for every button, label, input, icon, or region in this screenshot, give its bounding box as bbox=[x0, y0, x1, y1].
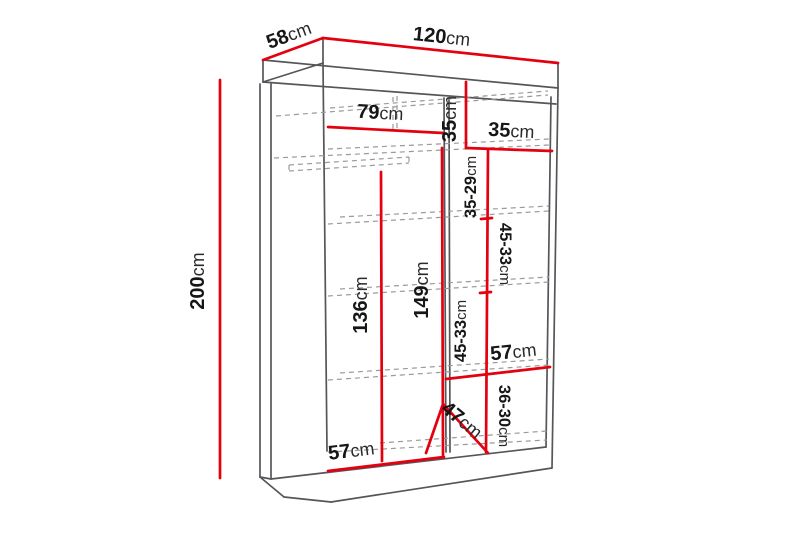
top-panel-front-bottom bbox=[263, 82, 556, 104]
left-foot-slant bbox=[260, 477, 284, 497]
dim-label-35-vertical: 35cm bbox=[439, 96, 461, 142]
dim-line-right-chain bbox=[486, 150, 488, 452]
dim-chain-tick-1 bbox=[481, 218, 492, 219]
interior-back-left-corner bbox=[323, 63, 327, 451]
shelf2-front bbox=[328, 211, 549, 224]
dim-label-47: 47cm bbox=[437, 397, 487, 443]
dim-label-45-33-lower: 45-33cm bbox=[452, 300, 470, 362]
dim-label-35-horizontal: 35cm bbox=[488, 119, 535, 143]
plinth-bottom-edge bbox=[331, 468, 552, 502]
dim-label-depth-58: 58cm bbox=[263, 17, 314, 54]
dim-label-width-120: 120cm bbox=[412, 23, 471, 51]
ceiling-back-edge-a bbox=[276, 95, 548, 116]
dim-line-79 bbox=[328, 127, 443, 133]
left-foot-to-plinth bbox=[284, 497, 331, 502]
dim-label-136: 136cm bbox=[350, 276, 372, 333]
dim-label-height-200: 200cm bbox=[187, 252, 209, 309]
dimension-labels: 58cm 120cm 200cm 79cm 35cm 35cm 35-29cm … bbox=[187, 17, 538, 465]
shelf4-front bbox=[328, 365, 549, 380]
dim-line-35-horizontal bbox=[466, 148, 552, 151]
dim-label-36-30: 36-30cm bbox=[495, 385, 513, 447]
dim-line-136 bbox=[381, 172, 382, 461]
top-panel-front-edge bbox=[263, 60, 558, 88]
right-panel-outer-edge bbox=[552, 88, 558, 468]
dim-chain-tick-2 bbox=[480, 292, 491, 293]
center-divider-left bbox=[444, 98, 446, 452]
dim-label-35-29: 35-29cm bbox=[462, 156, 480, 218]
top-shelf-front bbox=[274, 145, 549, 158]
dim-label-45-33-upper: 45-33cm bbox=[496, 223, 514, 285]
floor-front-edge bbox=[271, 447, 546, 479]
wardrobe-dimension-diagram: 58cm 120cm 200cm 79cm 35cm 35cm 35-29cm … bbox=[0, 0, 800, 533]
diagram-canvas: 58cm 120cm 200cm 79cm 35cm 35cm 35-29cm … bbox=[0, 0, 800, 533]
dim-label-57-bottom: 57cm bbox=[327, 437, 376, 464]
top-panel-left-bottom bbox=[263, 63, 323, 82]
dim-line-57-right bbox=[446, 367, 550, 379]
dim-label-57-right: 57cm bbox=[489, 339, 537, 366]
dim-label-149: 149cm bbox=[411, 261, 433, 318]
dim-label-79: 79cm bbox=[357, 101, 404, 125]
